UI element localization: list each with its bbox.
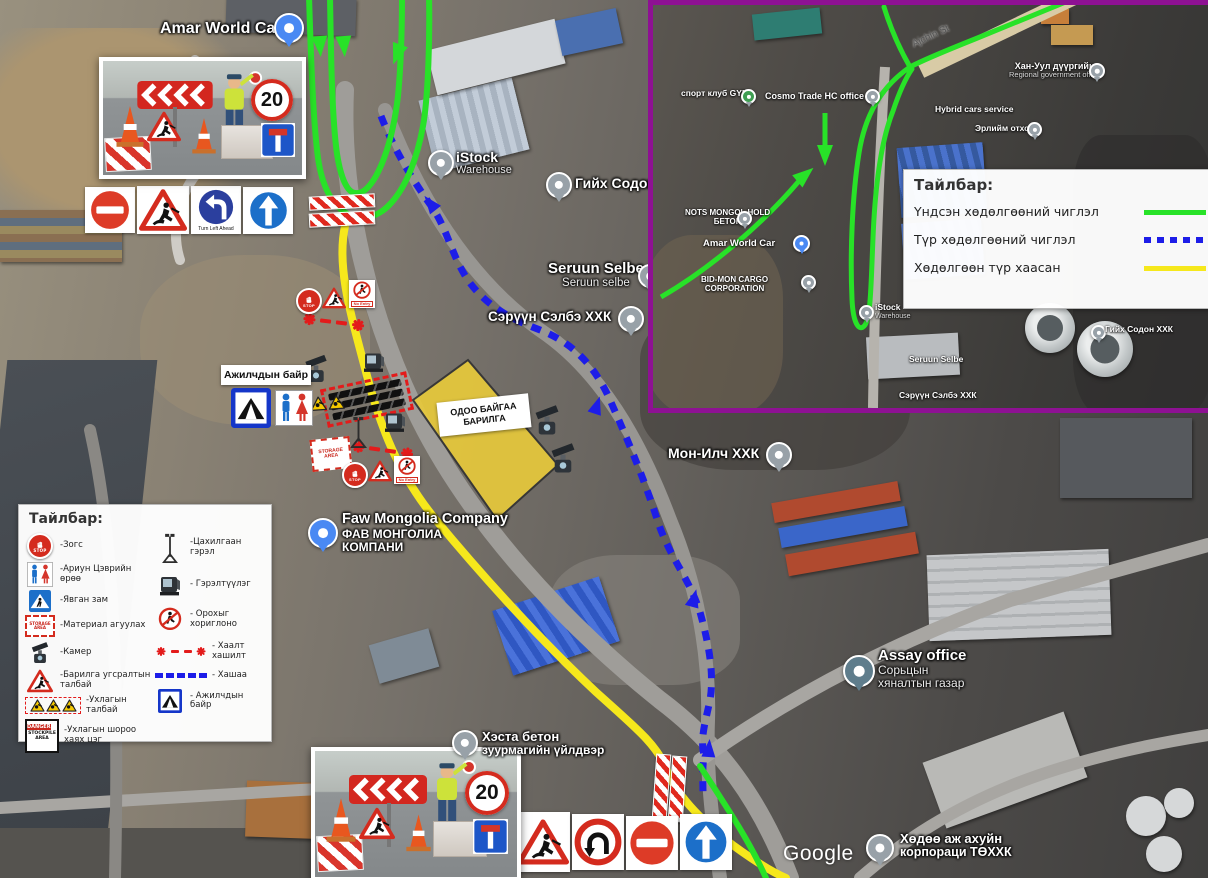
no-entry-icon [89,189,131,231]
cctv-camera-icon [549,440,577,477]
legend-item: STORAGE AREA -Материал агуулах [25,615,153,637]
no-pedestrian-sign: No Entry [349,280,375,308]
poi-label-cosmo: Cosmo Trade HC office [765,91,864,101]
no-entry-sign-card [626,816,678,870]
poi-icon-amar [274,13,304,43]
workers-camp-sign [231,388,271,428]
turn-left-icon [197,188,235,226]
no-u-turn-sign-card [572,814,624,870]
poi-label-khodoo: Хөдөө аж ахуйн корпораци ТӨХХК [900,832,1012,860]
poi-icon-faw [308,518,338,548]
main-route-arrow [386,42,408,67]
poi-label-nots: NOTS MONGOL HOLD БЕТОН [685,209,770,227]
poi-pin-giikh-inset [1091,325,1106,340]
site-photo: 20 [311,747,521,878]
turn-left-sign-card: Turn Left Ahead [191,186,241,234]
roadwork-sign-photo [359,807,395,840]
stop-icon: STOP [27,533,53,559]
poi-pin-seruun-selbe-mn [618,306,644,332]
legend-item: - Хашаа [155,671,267,681]
green-solid-line-swatch [1144,210,1206,215]
floodlight-icon [383,408,407,435]
roadwork-sign-card [516,812,570,872]
poi-pin-nots [737,211,752,226]
poi-label-amar-inset: Amar World Car [703,239,775,250]
no-pedestrian-icon [397,457,417,477]
poi-pin-bidmon [801,275,816,290]
no-entry-caption: No Entry [396,477,418,483]
yellow-solid-line-swatch [1144,266,1206,271]
no-entry-caption: No Entry [351,301,373,307]
roadwork-sign-card [137,186,189,234]
poi-pin-cosmo [865,89,880,104]
inset-legend-item: Хөдөлгөөн түр хаасан [914,254,1206,282]
dead-end-sign-icon [473,819,508,854]
legend-item: -Камер [25,640,153,666]
turn-left-caption: Turn Left Ahead [198,226,233,232]
poi-pin-istock-inset [859,305,874,320]
legend-item: -Цахилгаан гэрэл [155,533,267,563]
poi-label-seruun-en-inset: Seruun Selbe [909,355,963,365]
legend-item: - Орохыг хориглоно [155,607,267,633]
ahead-only-icon [247,189,290,232]
speed-limit-sign: 20 [465,771,509,815]
legend-item: -Барилга угсралтын талбай [25,669,153,693]
poi-icon-assay [843,655,875,687]
poi-pin-erliim [1027,122,1042,137]
google-watermark: Google [783,842,854,866]
no-pedestrian-icon [352,281,372,301]
warning-triangle-icon [327,394,345,410]
light-tower-icon [161,533,179,563]
inset-legend-title: Тайлбар: [914,176,1206,194]
toilet-icon [27,562,53,587]
no-u-turn-icon [574,818,622,866]
speed-limit-sign: 20 [251,79,293,121]
barrier-x-icon [302,312,315,325]
poi-pin-mon-ilch [766,442,792,468]
poi-pin-sport-club [741,89,756,104]
no-pedestrian-icon [158,607,182,633]
barrier-line-icon [157,647,206,656]
toilet-sign [275,390,313,426]
chevron-board-icon [137,81,213,109]
legend-item: - Ажилчдын байр [155,689,267,713]
poi-label-mon-ilch: Мон-Илч ХХК [668,446,759,461]
no-entry-sign-card [85,187,135,233]
poi-label-sport-club: спорт клуб GYM [681,89,749,99]
stockpile-icon: DANGERSTOCKPILEAREA [25,719,59,753]
inset-legend: Тайлбар: Үндсэн хөдөлгөөний чиглэл Түр х… [903,169,1208,309]
ahead-only-sign-card [680,814,732,870]
no-entry-icon [628,819,676,867]
poi-label-khanuul: Хан-Уул дүүргийн Regional government off… [1009,61,1100,79]
chevron-board-icon [349,775,427,804]
poi-label-erliim: Эрлийм отхон [975,124,1035,134]
legend-item: -Явган зам [25,590,153,612]
inset-legend-item: Түр хөдөлгөөний чиглэл [914,226,1206,254]
legend-item: -Ариун Цэврийн өрөө [25,562,153,587]
main-legend: Тайлбар: STOP -Зогс -Ариун Цэврийн өрөө … [18,504,272,742]
legend-item: - Гэрэлтүүлэг [155,572,267,598]
floodlight-icon [362,348,386,375]
poi-label-amar-world-car: Amar World Car [160,20,282,37]
excavation-triangles-icon [30,699,45,712]
poi-label-bidmon: BID-MON CARGO CORPORATION [701,276,768,294]
fence-line-icon [155,673,207,678]
traffic-cone-icon [325,795,357,843]
traffic-cone-icon [115,103,145,148]
poi-label-khesta: Хэста бетон зуурмагийн үйлдвэр [482,730,604,757]
traffic-cone-icon [191,115,217,155]
roadwork-icon [139,188,187,232]
poi-pin-giikh-sodon [546,172,572,198]
poi-label-giikh-sodon: Гийх Содон [575,176,656,191]
inset-route-arrowhead [817,145,833,166]
material-storage-icon: STORAGE AREA [25,615,55,637]
poi-pin-khodoo [866,834,894,862]
poi-pin-istock [428,150,454,176]
inset-map: Ajchin St спорт клуб GYM Cosmo Trade HC … [648,0,1208,413]
roadwork-sign-photo [147,111,181,142]
main-route-arrow [335,35,352,57]
workers-camp-label: Ажилчдын байр [221,365,311,385]
stop-sign: STOP [296,288,322,314]
traffic-plan-map: ОДОО БАЙГАА БАРИЛГА STOP No Entry [0,0,1208,878]
ahead-only-sign-card [243,187,293,234]
legend-item: DANGERSTOCKPILEAREA -Ухлагын шороо хаях … [25,719,153,753]
inset-legend-item: Үндсэн хөдөлгөөний чиглэл [914,198,1206,226]
roadwork-icon [27,669,53,693]
legend-item: -Ухлагын талбай [25,696,153,716]
legend-item: STOP -Зогс [25,533,153,559]
roadwork-sign [322,287,346,309]
crosswalk-icon [29,590,51,612]
poi-pin-khanuul [1089,63,1105,79]
ahead-only-icon [682,818,730,866]
poi-label-hybrid: Hybrid cars service [935,105,1013,115]
floodlight-icon [158,572,182,598]
camera-icon [30,640,50,666]
poi-label-assay: Assay office Сорьцын хяналтын газар [878,648,966,690]
poi-pin-khesta [452,730,478,756]
poi-label-istock: iStock Warehouse [456,150,512,177]
poi-label-giikh-inset: Гийх Содон ХХК [1105,325,1173,335]
dead-end-sign-icon [261,123,295,157]
poi-label-seruun-selbe-mn: Сэрүүн Сэлбэ ХХК [488,310,611,325]
stop-sign: STOP [342,462,368,488]
site-photo: 20 [99,57,306,179]
roadwork-icon [517,818,569,866]
poi-label-faw: Faw Mongolia Company ФАВ МОНГОЛИА КОМПАН… [342,512,508,554]
poi-icon-amar-inset [793,235,810,252]
poi-label-seruun-selbe-en: Seruun Selbe Seruun selbe [548,261,644,290]
legend-item: - Хаалт хашилт [155,642,267,662]
roadwork-sign [368,460,392,482]
cctv-camera-icon [533,402,561,439]
no-pedestrian-sign: No Entry [394,456,420,484]
barrier-x-icon [351,318,364,331]
poi-label-seruun-mn-inset: Сэрүүн Сэлбэ ХХК [899,391,977,401]
light-tower-icon [349,416,368,448]
legend-title: Тайлбар: [29,511,103,527]
workers-camp-icon [158,689,182,713]
blue-dashed-line-swatch [1144,237,1206,243]
